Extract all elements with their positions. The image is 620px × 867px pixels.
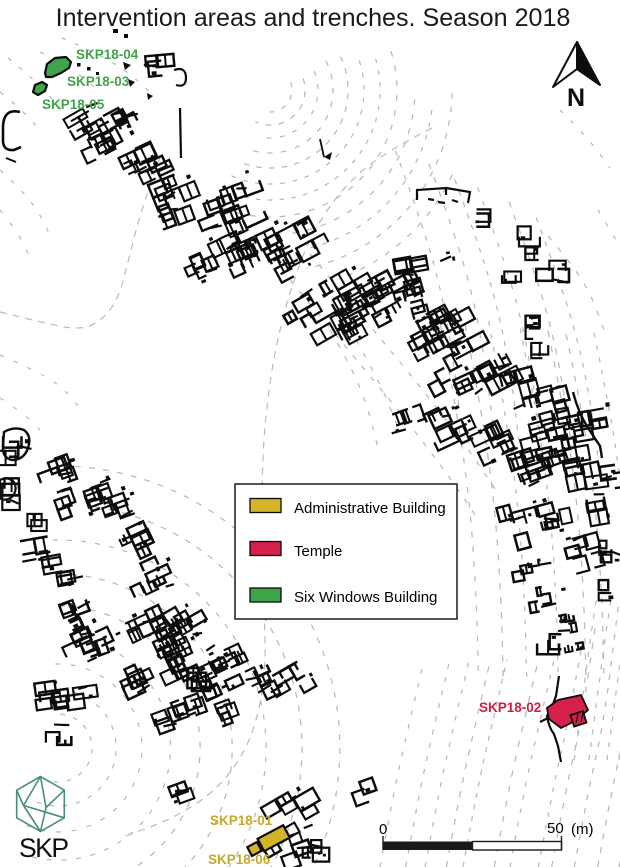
- svg-text:Administrative Building: Administrative Building: [294, 500, 446, 517]
- svg-text:SKP18-01: SKP18-01: [210, 813, 273, 828]
- svg-text:SKP18-05: SKP18-05: [42, 97, 105, 112]
- svg-text:SKP18-02: SKP18-02: [479, 700, 541, 715]
- svg-text:SKP: SKP: [19, 833, 68, 863]
- svg-text:Six Windows Building: Six Windows Building: [294, 589, 437, 606]
- svg-text:SKP18-03: SKP18-03: [67, 74, 130, 89]
- svg-text:0: 0: [379, 821, 387, 838]
- svg-text:Intervention areas and trenche: Intervention areas and trenches. Season …: [56, 4, 571, 32]
- svg-text:SKP18-04: SKP18-04: [76, 47, 139, 62]
- svg-text:(m): (m): [571, 821, 594, 838]
- svg-text:Temple: Temple: [294, 543, 342, 560]
- svg-text:SKP18-06: SKP18-06: [208, 852, 271, 867]
- svg-text:N: N: [567, 84, 585, 112]
- svg-text:50: 50: [547, 820, 564, 837]
